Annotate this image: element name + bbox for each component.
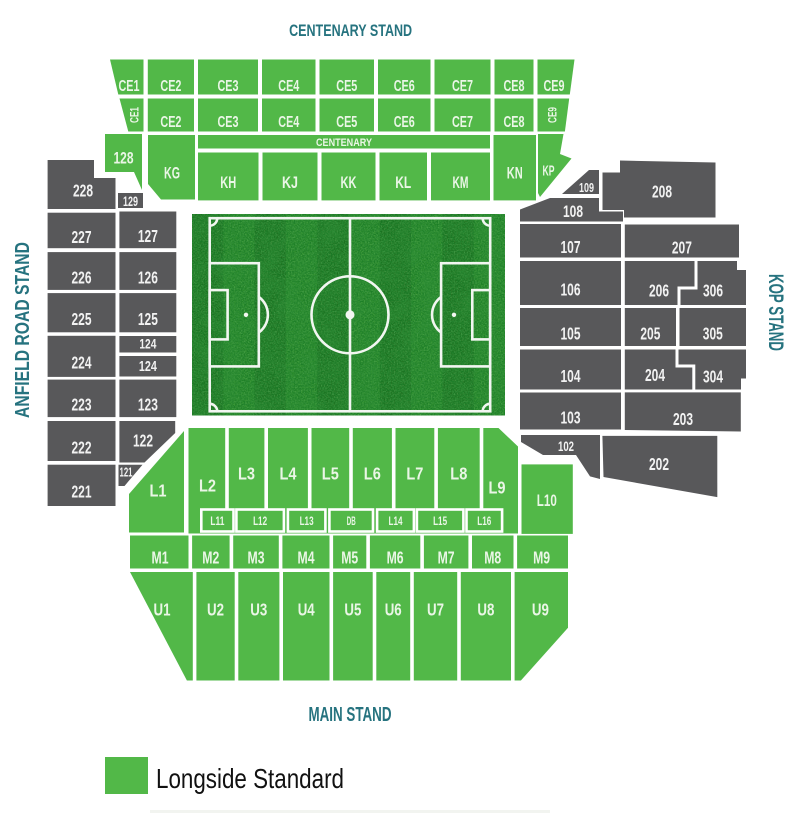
svg-text:208: 208 [652, 181, 672, 201]
svg-text:103: 103 [561, 407, 581, 427]
svg-text:CENTENARY: CENTENARY [316, 137, 373, 149]
svg-text:CENTENARY STAND: CENTENARY STAND [289, 21, 412, 40]
svg-text:CE8: CE8 [504, 78, 525, 95]
svg-text:202: 202 [649, 454, 669, 474]
svg-text:KJ: KJ [282, 173, 298, 192]
svg-text:205: 205 [640, 323, 660, 343]
svg-text:207: 207 [672, 237, 692, 257]
svg-text:L10: L10 [537, 491, 557, 510]
svg-text:M4: M4 [298, 547, 315, 567]
svg-text:L8: L8 [450, 463, 467, 483]
svg-text:M8: M8 [484, 547, 501, 567]
svg-text:CE5: CE5 [336, 78, 357, 95]
svg-text:108: 108 [563, 202, 583, 221]
svg-text:U5: U5 [344, 599, 361, 619]
svg-text:CE9: CE9 [545, 107, 559, 123]
svg-text:127: 127 [138, 226, 158, 246]
svg-text:124: 124 [139, 358, 157, 375]
svg-text:CE7: CE7 [452, 114, 473, 131]
svg-text:CE7: CE7 [452, 78, 473, 95]
svg-text:L6: L6 [364, 463, 381, 483]
svg-text:Longside Standard: Longside Standard [156, 763, 344, 794]
svg-text:225: 225 [72, 309, 92, 329]
svg-text:203: 203 [673, 409, 693, 429]
svg-text:U1: U1 [154, 599, 171, 619]
svg-text:128: 128 [114, 149, 134, 168]
svg-text:123: 123 [138, 395, 158, 415]
svg-text:CE6: CE6 [394, 114, 415, 131]
svg-text:109: 109 [579, 180, 594, 195]
svg-text:305: 305 [703, 323, 723, 343]
svg-text:CE1: CE1 [119, 78, 140, 95]
svg-text:MAIN STAND: MAIN STAND [309, 704, 392, 726]
svg-text:L2: L2 [199, 475, 216, 495]
svg-text:L4: L4 [280, 463, 297, 483]
svg-text:L11: L11 [210, 516, 224, 528]
svg-text:CE6: CE6 [394, 78, 415, 95]
svg-text:L3: L3 [238, 463, 255, 483]
svg-text:126: 126 [138, 267, 158, 287]
svg-text:106: 106 [561, 279, 581, 299]
svg-text:KG: KG [164, 164, 180, 183]
svg-text:CE2: CE2 [160, 78, 181, 95]
svg-text:224: 224 [72, 353, 92, 373]
svg-text:204: 204 [645, 365, 665, 385]
svg-text:KM: KM [453, 173, 469, 192]
svg-text:223: 223 [72, 395, 92, 415]
svg-text:KOP STAND: KOP STAND [764, 274, 788, 351]
svg-text:102: 102 [558, 439, 574, 454]
svg-text:107: 107 [561, 237, 581, 257]
svg-text:306: 306 [703, 280, 723, 300]
svg-text:L5: L5 [322, 463, 339, 483]
svg-text:CE1: CE1 [127, 107, 141, 123]
svg-text:KN: KN [507, 164, 523, 183]
svg-text:U8: U8 [477, 599, 494, 619]
svg-text:U7: U7 [427, 599, 444, 619]
svg-text:M3: M3 [248, 547, 265, 567]
svg-text:M6: M6 [387, 547, 404, 567]
svg-text:M5: M5 [341, 547, 358, 567]
svg-text:M2: M2 [202, 547, 219, 567]
svg-text:L13: L13 [300, 516, 314, 528]
svg-text:CE3: CE3 [218, 114, 239, 131]
svg-text:L14: L14 [389, 516, 403, 528]
svg-text:125: 125 [138, 309, 158, 329]
svg-text:M1: M1 [152, 547, 169, 567]
svg-text:221: 221 [72, 482, 92, 502]
svg-text:124: 124 [139, 336, 156, 352]
svg-text:CE4: CE4 [278, 78, 299, 95]
svg-text:ANFIELD ROAD STAND: ANFIELD ROAD STAND [12, 242, 34, 418]
svg-text:KP: KP [543, 162, 555, 179]
svg-text:206: 206 [649, 280, 669, 300]
svg-text:222: 222 [72, 437, 92, 457]
svg-text:L9: L9 [489, 477, 506, 497]
svg-text:DB: DB [347, 516, 356, 528]
svg-text:U3: U3 [250, 599, 267, 619]
svg-text:105: 105 [561, 323, 581, 343]
svg-text:M9: M9 [533, 547, 550, 567]
svg-text:CE4: CE4 [278, 114, 299, 131]
svg-text:M7: M7 [438, 547, 455, 567]
svg-text:U4: U4 [298, 599, 315, 619]
svg-text:U6: U6 [385, 599, 402, 619]
svg-text:L7: L7 [406, 463, 423, 483]
svg-text:KK: KK [341, 173, 357, 192]
svg-text:227: 227 [72, 227, 92, 247]
svg-text:KL: KL [395, 173, 411, 192]
svg-text:129: 129 [123, 193, 138, 209]
svg-text:CE9: CE9 [544, 78, 565, 95]
svg-text:KH: KH [220, 173, 236, 192]
svg-text:CE2: CE2 [160, 114, 181, 131]
svg-text:122: 122 [133, 430, 153, 450]
svg-text:L16: L16 [477, 516, 491, 528]
svg-text:L15: L15 [433, 516, 447, 528]
svg-text:CE3: CE3 [218, 78, 239, 95]
svg-text:226: 226 [72, 267, 92, 287]
svg-text:U2: U2 [207, 599, 224, 619]
svg-text:121: 121 [120, 465, 133, 480]
svg-text:228: 228 [73, 180, 93, 200]
svg-text:304: 304 [703, 367, 723, 387]
svg-text:L12: L12 [253, 516, 267, 528]
svg-text:CE8: CE8 [504, 114, 525, 131]
svg-text:104: 104 [561, 366, 581, 386]
svg-text:CE5: CE5 [336, 114, 357, 131]
svg-text:L1: L1 [150, 480, 167, 500]
svg-text:U9: U9 [532, 599, 549, 619]
